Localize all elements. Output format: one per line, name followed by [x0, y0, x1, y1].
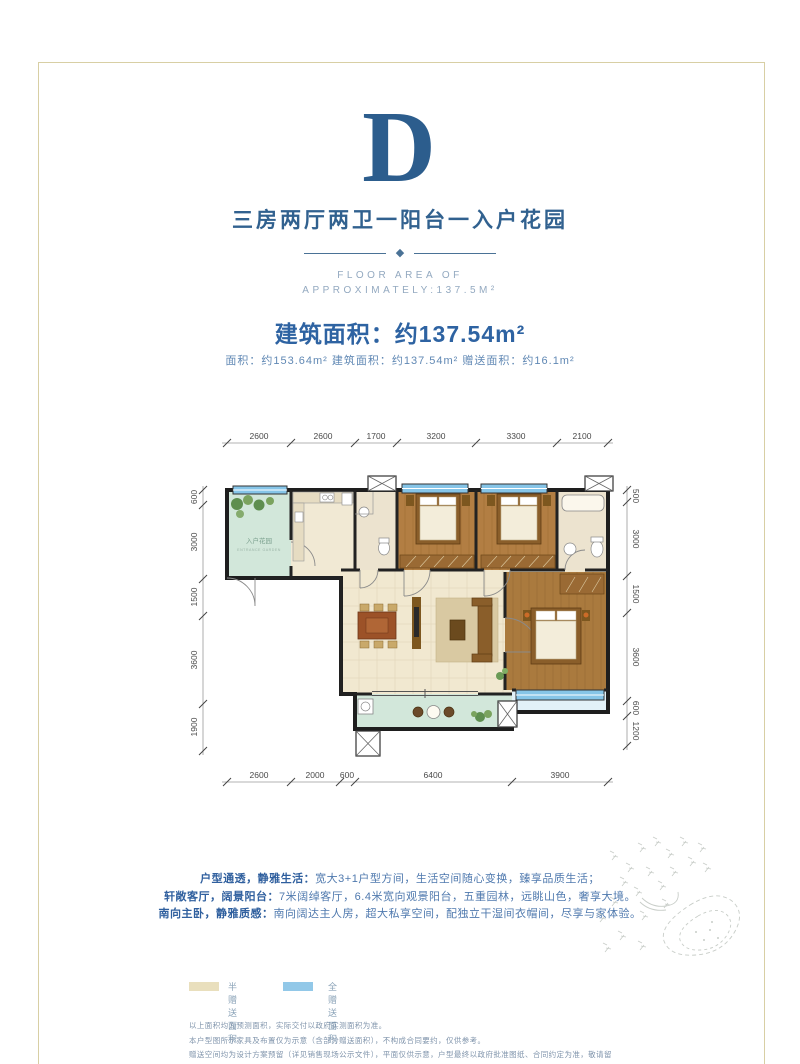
disclaimer-line: 赠送空间均为设计方案预留（详见销售现场公示文件），平面仅供示意，户型最终以政府批… — [189, 1048, 619, 1064]
kitchen-fridge — [342, 493, 352, 505]
label-entry-garden: 入户花园 — [246, 536, 272, 545]
legend-swatch-half-gift — [189, 982, 219, 991]
floorplan: 入户花园 ENTRANCE GARDEN — [170, 420, 650, 800]
ornament-divider: ◆ — [0, 246, 800, 260]
ac-unit-top-right — [585, 476, 613, 491]
area-detail: 面积：约153.64m² 建筑面积：约137.54m² 赠送面积：约16.1m² — [0, 352, 800, 368]
dim-top-2: 2600 — [314, 431, 333, 441]
divider-rule-right — [414, 253, 496, 254]
dim-right-3: 1500 — [631, 585, 641, 604]
dim-bottom-4: 6400 — [424, 770, 443, 780]
dim-left-4: 3600 — [189, 650, 199, 669]
dim-bottom-5: 3900 — [551, 770, 570, 780]
label-entry-garden-en: ENTRANCE GARDEN — [237, 548, 281, 552]
coffee-table — [450, 620, 465, 640]
balcony-table — [427, 706, 440, 719]
wardrobe-bedroom-3 — [481, 555, 555, 568]
dining-set — [358, 604, 397, 648]
sketch-strokes — [598, 837, 740, 955]
disclaimer-line: 以上面积均为预测面积，实际交付以政府实测面积为准。 — [189, 1019, 619, 1034]
english-caption: FLOOR AREA OF APPROXIMATELY:137.5M² — [0, 268, 800, 298]
dim-bottom-2: 2000 — [306, 770, 325, 780]
flyer-page: D 三房两厅两卫一阳台一入户花园 ◆ FLOOR AREA OF APPROXI… — [0, 0, 800, 1064]
disclaimer-line: 本户型图所示家具及布置仅为示意（含部分赠送面积），不构成合同要约，仅供参考。 — [189, 1034, 619, 1049]
selling-point-lead: 户型通透，静雅生活： — [200, 873, 315, 885]
divider-rule-left — [304, 253, 386, 254]
dim-right-4: 3600 — [631, 648, 641, 667]
dim-left-2: 3000 — [189, 532, 199, 551]
balcony-chair — [413, 707, 423, 717]
dim-top-3: 1700 — [367, 431, 386, 441]
bed-bedroom-2 — [406, 494, 470, 544]
dim-right-1: 500 — [631, 489, 641, 503]
dim-right-5: 600 — [631, 701, 641, 715]
dim-left-3: 1500 — [189, 587, 199, 606]
dim-top-6: 2100 — [573, 431, 592, 441]
dim-top-1: 2600 — [250, 431, 269, 441]
dim-left-5: 1900 — [189, 717, 199, 736]
landscape-sketch-watermark — [580, 810, 760, 980]
plan-letter: D — [0, 96, 800, 200]
tv — [414, 607, 419, 637]
plan-subtitle: 三房两厅两卫一阳台一入户花园 — [0, 204, 800, 234]
dim-top-4: 3200 — [427, 431, 446, 441]
door-entry — [227, 578, 255, 606]
legend-swatch-full-gift — [283, 982, 313, 991]
dim-top-5: 3300 — [507, 431, 526, 441]
area-title: 建筑面积：约137.54m² — [0, 315, 800, 349]
kitchen-sink — [295, 512, 303, 522]
kitchen-stove — [320, 493, 334, 502]
diamond-ornament-icon: ◆ — [396, 248, 404, 259]
room-bath-1 — [355, 490, 397, 570]
wardrobe-bedroom-2 — [400, 555, 474, 568]
dim-right-2: 3000 — [631, 530, 641, 549]
ac-unit-balcony-bottom — [356, 731, 380, 756]
floorplan-svg: 入户花园 ENTRANCE GARDEN — [170, 420, 650, 800]
english-caption-line2: APPROXIMATELY:137.5M² — [0, 283, 800, 298]
balcony-chair — [444, 707, 454, 717]
washer — [358, 699, 373, 714]
english-caption-line1: FLOOR AREA OF — [0, 268, 800, 283]
living-plant — [496, 672, 504, 680]
selling-point-text: 宽大3+1户型方间，生活空间随心变换，臻享品质生活； — [315, 873, 600, 885]
disclaimer: 以上面积均为预测面积，实际交付以政府实测面积为准。 本户型图所示家具及布置仅为示… — [189, 1019, 619, 1064]
dim-right-6: 1200 — [631, 722, 641, 741]
selling-point-lead: 轩敞客厅，阔景阳台： — [164, 891, 279, 903]
sofa — [478, 604, 492, 656]
dim-bottom-1: 2600 — [250, 770, 269, 780]
dim-left-1: 600 — [189, 490, 199, 504]
ac-unit-balcony-right — [498, 701, 517, 727]
dim-bottom-3: 600 — [340, 770, 354, 780]
selling-point-lead: 南向主卧，静雅质感： — [159, 908, 274, 920]
ac-unit-top-left — [368, 476, 396, 491]
